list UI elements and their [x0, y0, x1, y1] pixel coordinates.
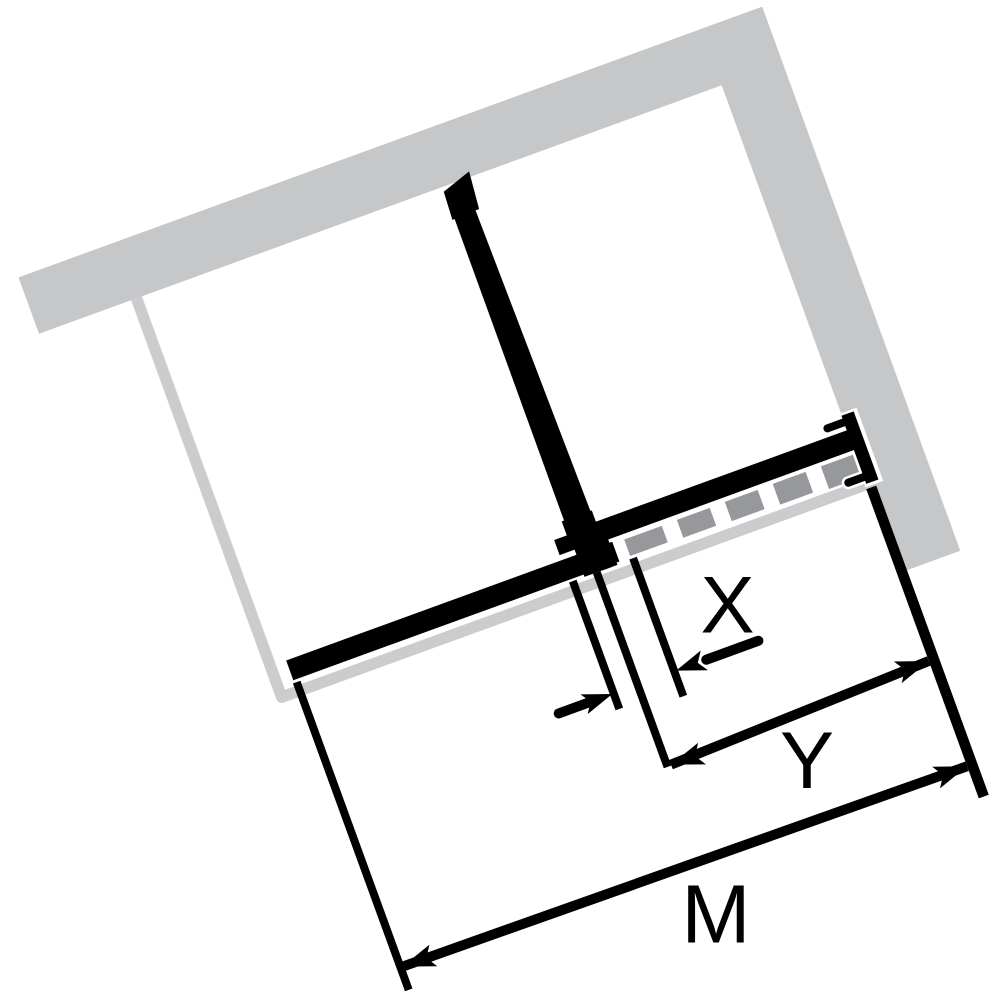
svg-text:Y: Y	[780, 716, 834, 806]
svg-text:M: M	[681, 868, 750, 961]
svg-text:X: X	[700, 561, 754, 651]
